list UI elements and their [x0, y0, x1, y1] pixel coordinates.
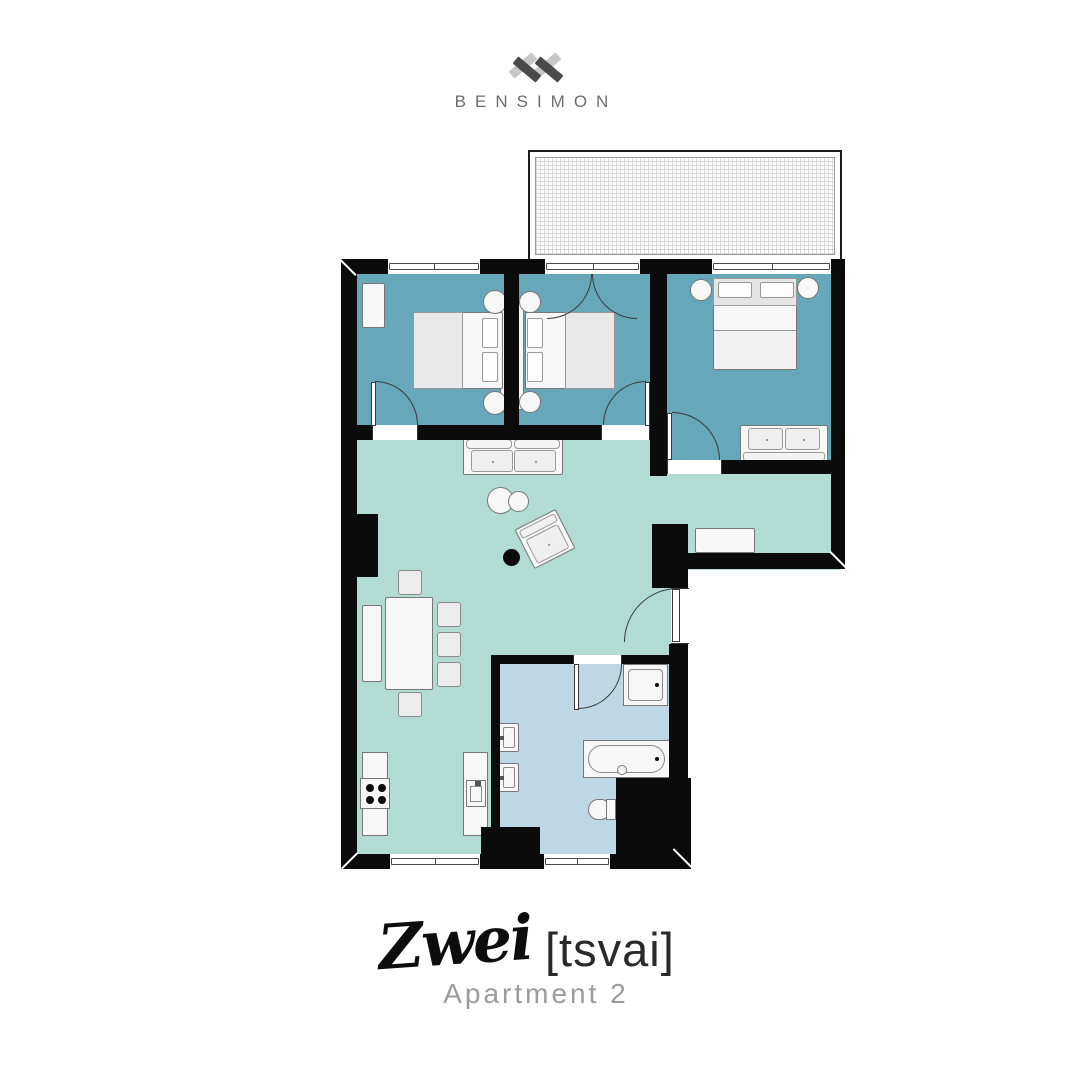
- burner-icon: [366, 784, 374, 792]
- wall-segment: [341, 259, 357, 869]
- bed-duvet: [413, 312, 463, 389]
- brand-name: BENSIMON: [0, 92, 1072, 112]
- bed-pillow: [527, 352, 543, 382]
- door-opening: [667, 460, 722, 474]
- nightstand: [519, 291, 541, 313]
- hall-sideboard: [695, 528, 755, 553]
- sofa-back: [466, 439, 512, 449]
- tub-faucet-icon: [617, 765, 627, 775]
- floorplan-poster: BENSIMON: [0, 0, 1072, 1072]
- basin-bowl: [503, 727, 515, 748]
- dining-chair: [437, 662, 461, 687]
- window: [712, 259, 831, 274]
- apartment-subtitle: Apartment 2: [0, 978, 1072, 1010]
- bedroom-sofa: [740, 425, 828, 463]
- door-opening: [573, 655, 622, 664]
- balcony-floor-hatch: [535, 157, 835, 255]
- dining-table: [385, 597, 433, 690]
- wall-segment: [357, 514, 378, 577]
- sofa-cushion: [514, 450, 556, 472]
- wall-segment: [669, 644, 688, 780]
- bed-pillow: [760, 282, 794, 298]
- dining-chair: [398, 692, 422, 717]
- wall-segment: [652, 524, 688, 588]
- door-opening: [372, 425, 418, 440]
- balcony: [528, 150, 842, 262]
- nightstand: [519, 391, 541, 413]
- wall-segment: [831, 259, 845, 569]
- window: [390, 854, 480, 869]
- sink-basin: [470, 786, 482, 802]
- sofa-back: [514, 439, 560, 449]
- dining-chair: [398, 570, 422, 595]
- apartment-title-phonetic: [tsvai]: [545, 922, 675, 977]
- side-table: [503, 549, 520, 566]
- drain-icon: [655, 757, 659, 761]
- toilet-bowl: [588, 799, 608, 820]
- bed-duvet: [714, 330, 796, 369]
- bed-pillow: [482, 318, 498, 348]
- window: [544, 854, 610, 869]
- kitchen-sink: [466, 780, 486, 807]
- washbasin: [498, 723, 519, 752]
- sideboard: [362, 605, 382, 682]
- washbasin: [498, 763, 519, 792]
- tap-icon: [475, 781, 481, 786]
- wall-segment: [481, 827, 540, 869]
- toilet-tank: [606, 799, 616, 820]
- bed-pillow: [482, 352, 498, 382]
- wall-segment: [504, 259, 519, 440]
- sofa-cushion: [785, 428, 820, 450]
- coffee-table: [508, 491, 529, 512]
- living-sofa: [463, 437, 563, 475]
- balcony-door-frame: [545, 259, 640, 274]
- burner-icon: [366, 796, 374, 804]
- wall-segment: [680, 553, 845, 569]
- dining-chair: [437, 632, 461, 657]
- bed-pillow: [718, 282, 752, 298]
- sofa-cushion: [748, 428, 783, 450]
- bathtub: [583, 740, 670, 778]
- door-opening: [601, 425, 650, 440]
- bed-pillow: [527, 318, 543, 348]
- basin-bowl: [503, 767, 515, 788]
- stove: [360, 778, 390, 809]
- drain-icon: [655, 683, 659, 687]
- wardrobe: [362, 283, 385, 328]
- dining-chair: [437, 602, 461, 627]
- shower: [623, 664, 668, 706]
- bed-duvet: [565, 312, 615, 389]
- brand-logo-icon: [506, 50, 568, 92]
- burner-icon: [378, 796, 386, 804]
- nightstand: [797, 277, 819, 299]
- window: [388, 259, 480, 274]
- apartment-title-script: Zwei: [376, 901, 534, 985]
- burner-icon: [378, 784, 386, 792]
- wall-segment: [650, 259, 667, 476]
- nightstand: [690, 279, 712, 301]
- sofa-cushion: [471, 450, 513, 472]
